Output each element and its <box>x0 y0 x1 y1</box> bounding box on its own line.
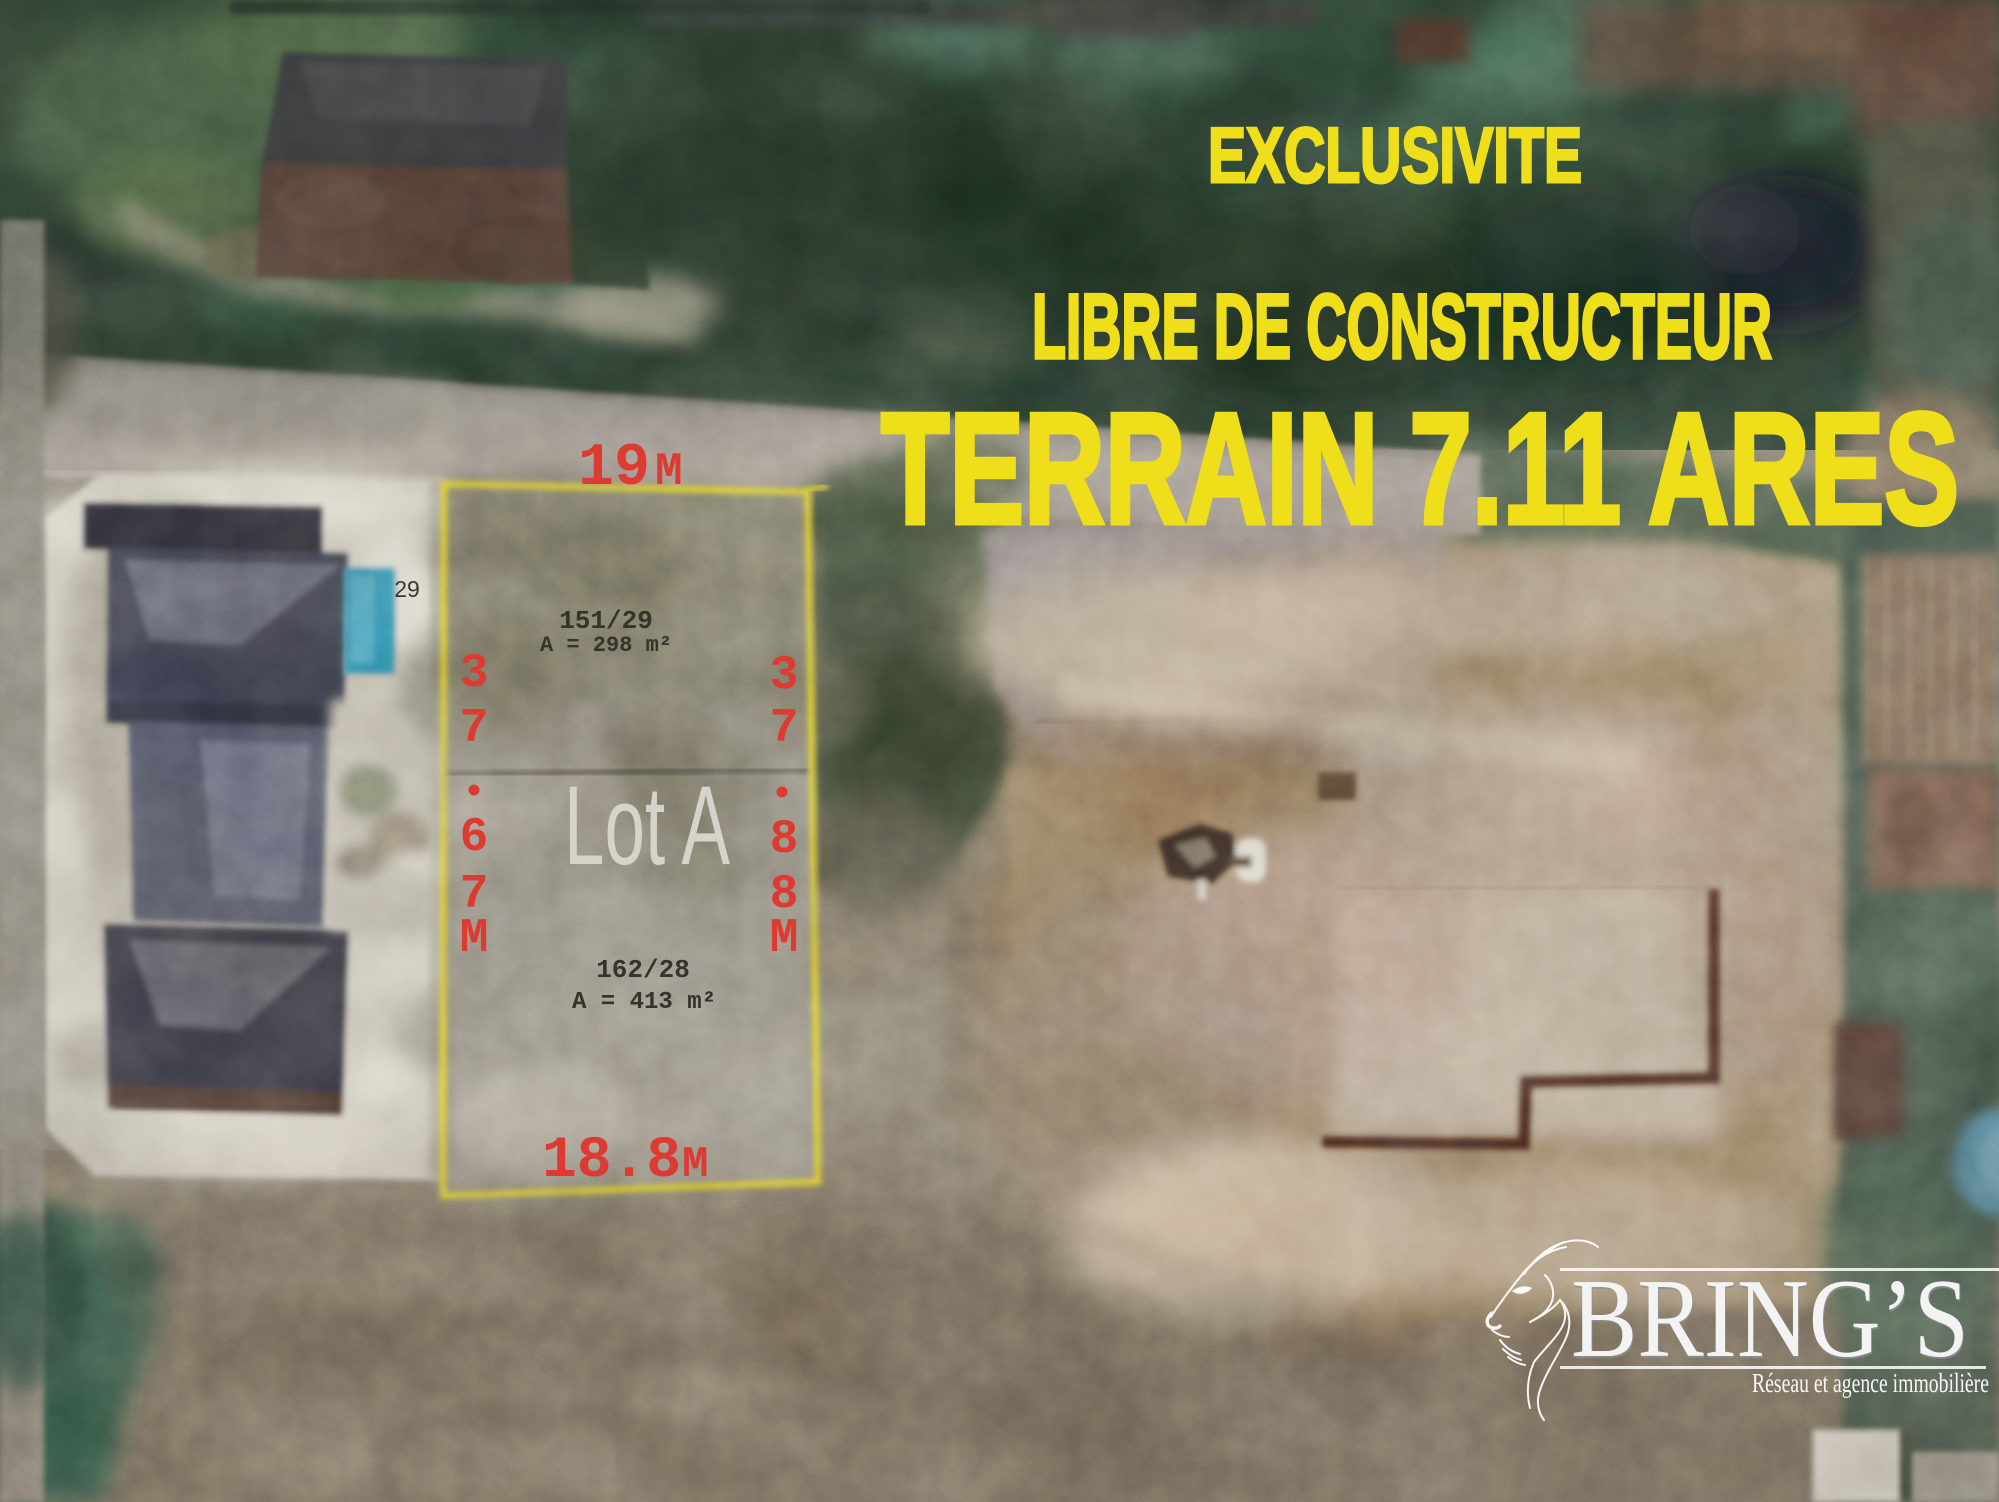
svg-text:EXCLUSIVITE: EXCLUSIVITE <box>1208 111 1582 199</box>
svg-text:18.8: 18.8 <box>542 1129 681 1194</box>
svg-text:M: M <box>682 1140 708 1190</box>
svg-text:BRING’S: BRING’S <box>1571 1257 1969 1381</box>
svg-text:TERRAIN 7.11 ARES: TERRAIN 7.11 ARES <box>881 381 1959 557</box>
svg-text:3: 3 <box>460 647 489 701</box>
svg-text:151/29: 151/29 <box>559 606 653 636</box>
svg-text:6: 6 <box>460 811 489 865</box>
svg-text:7: 7 <box>460 702 489 756</box>
svg-text:M: M <box>655 446 683 498</box>
svg-text:8: 8 <box>770 813 799 867</box>
svg-text:19: 19 <box>578 435 650 503</box>
svg-text:3: 3 <box>770 649 799 703</box>
svg-text:Réseau et agence immobilière: Réseau et agence immobilière <box>1752 1368 1989 1398</box>
svg-text:A = 413 m²: A = 413 m² <box>572 989 716 1016</box>
svg-text:Lot A: Lot A <box>564 763 730 888</box>
svg-text:162/28: 162/28 <box>596 955 690 985</box>
svg-text:7: 7 <box>770 702 799 756</box>
svg-text:M: M <box>460 912 489 966</box>
svg-text:29: 29 <box>394 576 420 602</box>
svg-text:M: M <box>770 912 799 966</box>
svg-text:A = 298 m²: A = 298 m² <box>540 633 672 658</box>
svg-text:LIBRE DE CONSTRUCTEUR: LIBRE DE CONSTRUCTEUR <box>1032 276 1772 378</box>
